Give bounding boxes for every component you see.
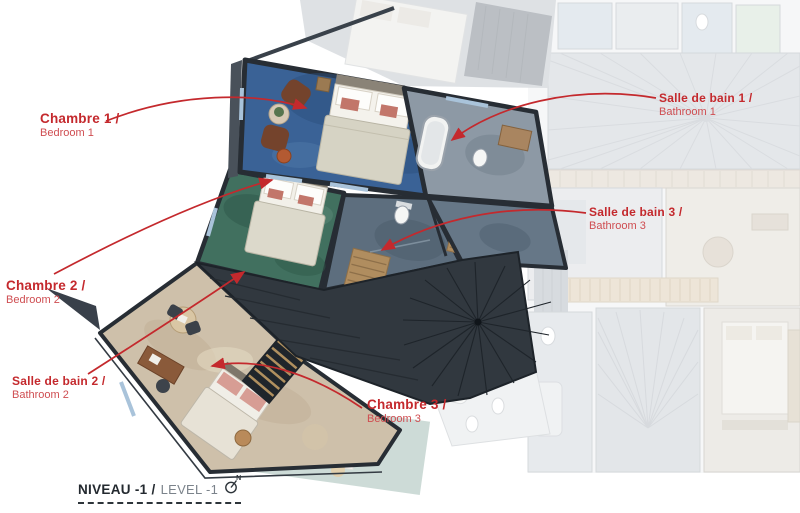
- label-salle-de-bain-2-fr: Salle de bain 2 /: [12, 374, 105, 389]
- label-salle-de-bain-1-fr: Salle de bain 1 /: [659, 91, 752, 106]
- floor-plan-graphic: [0, 0, 800, 513]
- label-chambre-1: Chambre 1 / Bedroom 1: [40, 111, 119, 141]
- level-title: NIVEAU -1 / LEVEL -1 N: [78, 478, 241, 504]
- label-chambre-1-en: Bedroom 1: [40, 127, 119, 140]
- label-chambre-2-en: Bedroom 2: [6, 294, 85, 307]
- label-chambre-2-fr: Chambre 2 /: [6, 278, 85, 294]
- label-salle-de-bain-3-en: Bathroom 3: [589, 220, 682, 233]
- level-title-en: LEVEL -1: [161, 482, 219, 497]
- label-salle-de-bain-1-en: Bathroom 1: [659, 106, 752, 119]
- floor-plan-page: Chambre 1 / Bedroom 1 Chambre 2 / Bedroo…: [0, 0, 800, 513]
- label-salle-de-bain-2: Salle de bain 2 / Bathroom 2: [12, 374, 105, 402]
- north-arrow-icon: N: [223, 478, 241, 494]
- level-title-fr: NIVEAU -1 /: [78, 482, 156, 497]
- label-salle-de-bain-2-en: Bathroom 2: [12, 389, 105, 402]
- label-chambre-3-fr: Chambre 3 /: [367, 397, 446, 413]
- label-chambre-3: Chambre 3 / Bedroom 3: [367, 397, 446, 427]
- label-salle-de-bain-3-fr: Salle de bain 3 /: [589, 205, 682, 220]
- label-salle-de-bain-1: Salle de bain 1 / Bathroom 1: [659, 91, 752, 119]
- label-chambre-1-fr: Chambre 1 /: [40, 111, 119, 127]
- label-salle-de-bain-3: Salle de bain 3 / Bathroom 3: [589, 205, 682, 233]
- north-letter: N: [236, 475, 241, 482]
- label-chambre-2: Chambre 2 / Bedroom 2: [6, 278, 85, 308]
- label-chambre-3-en: Bedroom 3: [367, 413, 446, 426]
